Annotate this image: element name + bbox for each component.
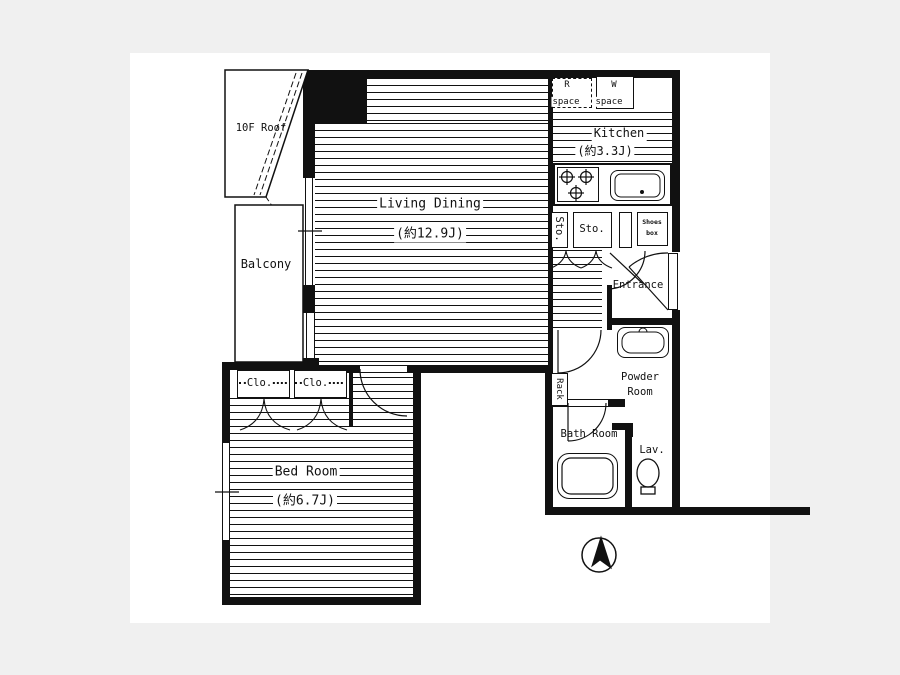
bedroom-window [222,443,230,540]
washer-space-sub: space [594,97,623,107]
wall-closet-corridor-divider [349,370,353,426]
balcony-window-lower [306,313,315,358]
wall-living-left-mid [303,285,315,313]
north-arrow-icon [582,537,616,572]
bathtub [557,453,618,499]
wall-column-block [303,70,367,123]
powder-sink [617,327,669,358]
wall-entrance-bottom [607,318,672,325]
wall-lav-jamb-v [626,423,633,437]
living-dining-floor [315,123,548,365]
kitchen-label: Kitchen [592,127,647,141]
powder-room-label-2: Room [625,386,654,398]
storage-label: Sto. [577,223,606,235]
living-dining-area: (約12.9J) [394,228,466,243]
roof-outline [225,70,308,216]
bath-doorway [568,399,608,407]
entrance-door-leaf [668,253,678,310]
shoes-box-label-1: Shoes [640,219,664,227]
floor-plan: 10F Roof Balcony Living Dining (約12.9J) … [130,53,770,623]
rack-label: Rack [554,377,564,401]
closet-left-label: Clo. [236,377,290,389]
bed-room-area: (約6.7J) [273,495,337,510]
wall-bath-lav-divider [625,430,632,507]
living-dining-label: Living Dining [377,198,483,213]
wall-bedroom-bottom [222,597,421,605]
bedroom-entry-floor [353,370,413,398]
roof-label: 10F Roof [234,122,289,134]
wall-bottom-right-wing [545,507,810,515]
plan-paper: 10F Roof Balcony Living Dining (約12.9J) … [130,53,770,623]
lavatory-label: Lav. [637,444,666,456]
hallway-floor [553,250,602,330]
bath-room-label: Bath Room [559,428,620,440]
balcony-outline [235,205,303,362]
living-alcove-floor [367,78,548,123]
wall-living-bottom-b [407,365,553,373]
stove-box [557,167,599,202]
closet-right-text: Clo. [303,377,328,389]
wall-right-upper [672,70,680,252]
wall-living-left-upper [303,123,315,178]
balcony-window [305,178,313,285]
floorplan-page: { "colors": { "page_bg": "#f0f0f0", "pap… [0,0,900,675]
wall-bedroom-right [413,365,421,605]
refrigerator-space-label: R [563,80,570,90]
refrigerator-space-sub: space [551,97,580,107]
powder-room-label-1: Powder [619,371,661,383]
bedroom-doorway [360,365,407,373]
entrance-label: Entrance [611,279,666,291]
kitchen-area: (約3.3J) [575,145,634,159]
wall-powder-bath-b [608,399,625,407]
closet-left-text: Clo. [247,377,272,389]
closet-right-label: Clo. [292,377,346,389]
storage-small-label: Sto. [553,214,565,243]
hall-cabinet-box [619,212,632,248]
washer-space-label: W [610,80,617,90]
wall-right-lower [672,310,680,515]
shoes-box-label-2: box [644,230,660,238]
bed-room-label: Bed Room [273,466,340,481]
toilet-icon [637,459,659,494]
balcony-label: Balcony [239,258,294,272]
kitchen-sink [610,170,665,201]
